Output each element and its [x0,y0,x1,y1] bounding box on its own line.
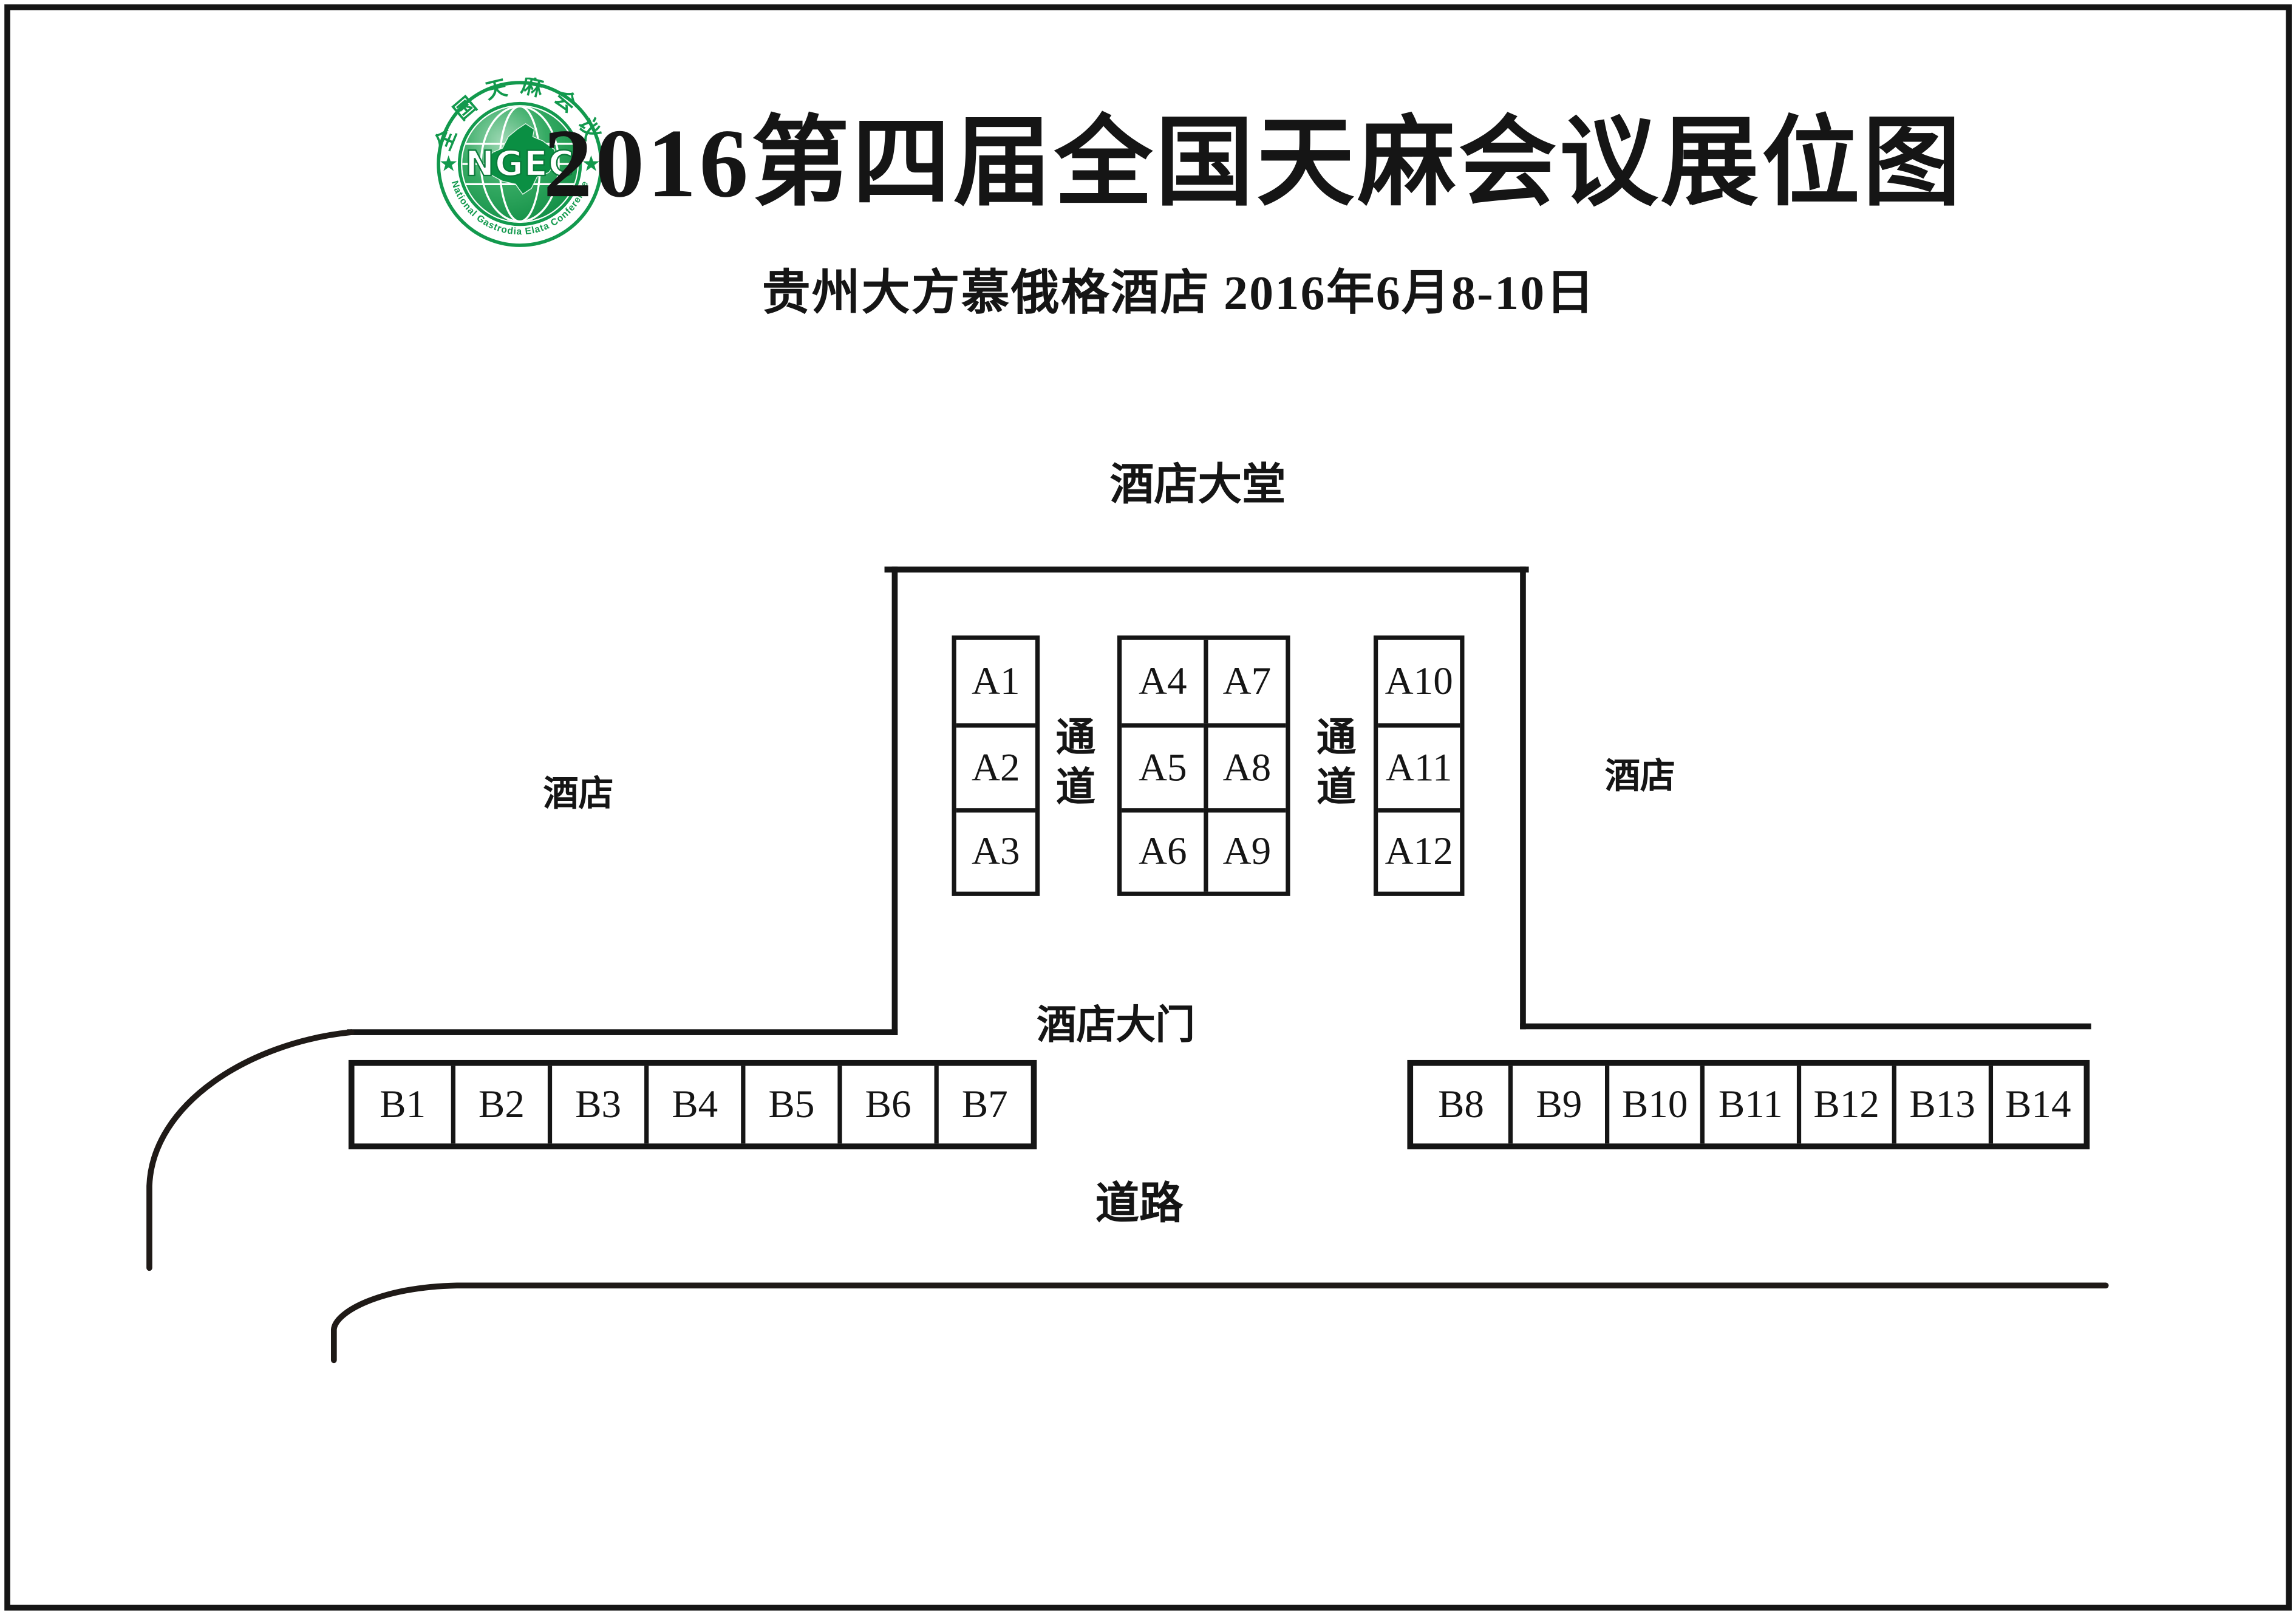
booth-column-a10-a12: A10A11A12 [1374,636,1465,896]
booth-a12: A12 [1378,807,1460,891]
building-wall-left [892,566,898,1035]
booth-b1: B1 [355,1066,451,1144]
label-hotel-lobby: 酒店大堂 [1051,463,1344,509]
booth-row-b8-b14: B8B9B10B11B12B13B14 [1407,1060,2090,1149]
booth-b9: B9 [1509,1066,1605,1144]
booth-a9: A9 [1204,807,1286,891]
label-hotel-left: 酒店 [462,773,696,817]
booth-b3: B3 [548,1066,644,1144]
booth-b11: B11 [1700,1066,1796,1144]
booth-b12: B12 [1796,1066,1892,1144]
booth-a1: A1 [956,640,1035,724]
road-curve-left [149,1032,352,1268]
booth-a5: A5 [1122,724,1204,807]
booth-column-a4-a9: A4A7A5A8A6A9 [1117,636,1290,896]
booth-b2: B2 [451,1066,548,1144]
booth-b14: B14 [1988,1066,2084,1144]
label-hotel-right: 酒店 [1523,755,1757,799]
page-title: 2016第四届全国天麻会议展位图 [410,103,2097,226]
venue-date-subtitle: 贵州大方慕俄格酒店 2016年6月8-10日 [410,265,1947,323]
booth-a10: A10 [1378,640,1460,724]
label-aisle-left: 通道 [1047,685,1097,846]
booth-b6: B6 [837,1066,934,1144]
booth-a4: A4 [1122,640,1204,724]
booth-floorplan-page: 全国天麻会议 National Gastrodia Elata Conferen… [0,0,2296,1615]
booth-b10: B10 [1605,1066,1701,1144]
booth-b5: B5 [741,1066,837,1144]
booth-row-b1-b7: B1B2B3B4B5B6B7 [349,1060,1037,1149]
booth-a6: A6 [1122,807,1204,891]
building-wall-right [1520,566,1526,1029]
booth-b8: B8 [1413,1066,1509,1144]
label-hotel-gate: 酒店大门 [969,1003,1262,1047]
building-wall-right-extension [1520,1024,2091,1030]
booth-column-a1-a3: A1A2A3 [952,636,1040,896]
booth-a2: A2 [956,724,1035,807]
label-road: 道路 [993,1181,1286,1227]
booth-b4: B4 [644,1066,741,1144]
building-wall-left-extension [347,1029,898,1035]
booth-b13: B13 [1892,1066,1988,1144]
booth-a8: A8 [1204,724,1286,807]
booth-a7: A7 [1204,640,1286,724]
booth-b7: B7 [935,1066,1031,1144]
road-line-long [334,1285,2106,1360]
booth-a3: A3 [956,807,1035,891]
label-aisle-right: 通道 [1307,685,1357,846]
booth-a11: A11 [1378,724,1460,807]
building-wall-top [885,566,1529,573]
